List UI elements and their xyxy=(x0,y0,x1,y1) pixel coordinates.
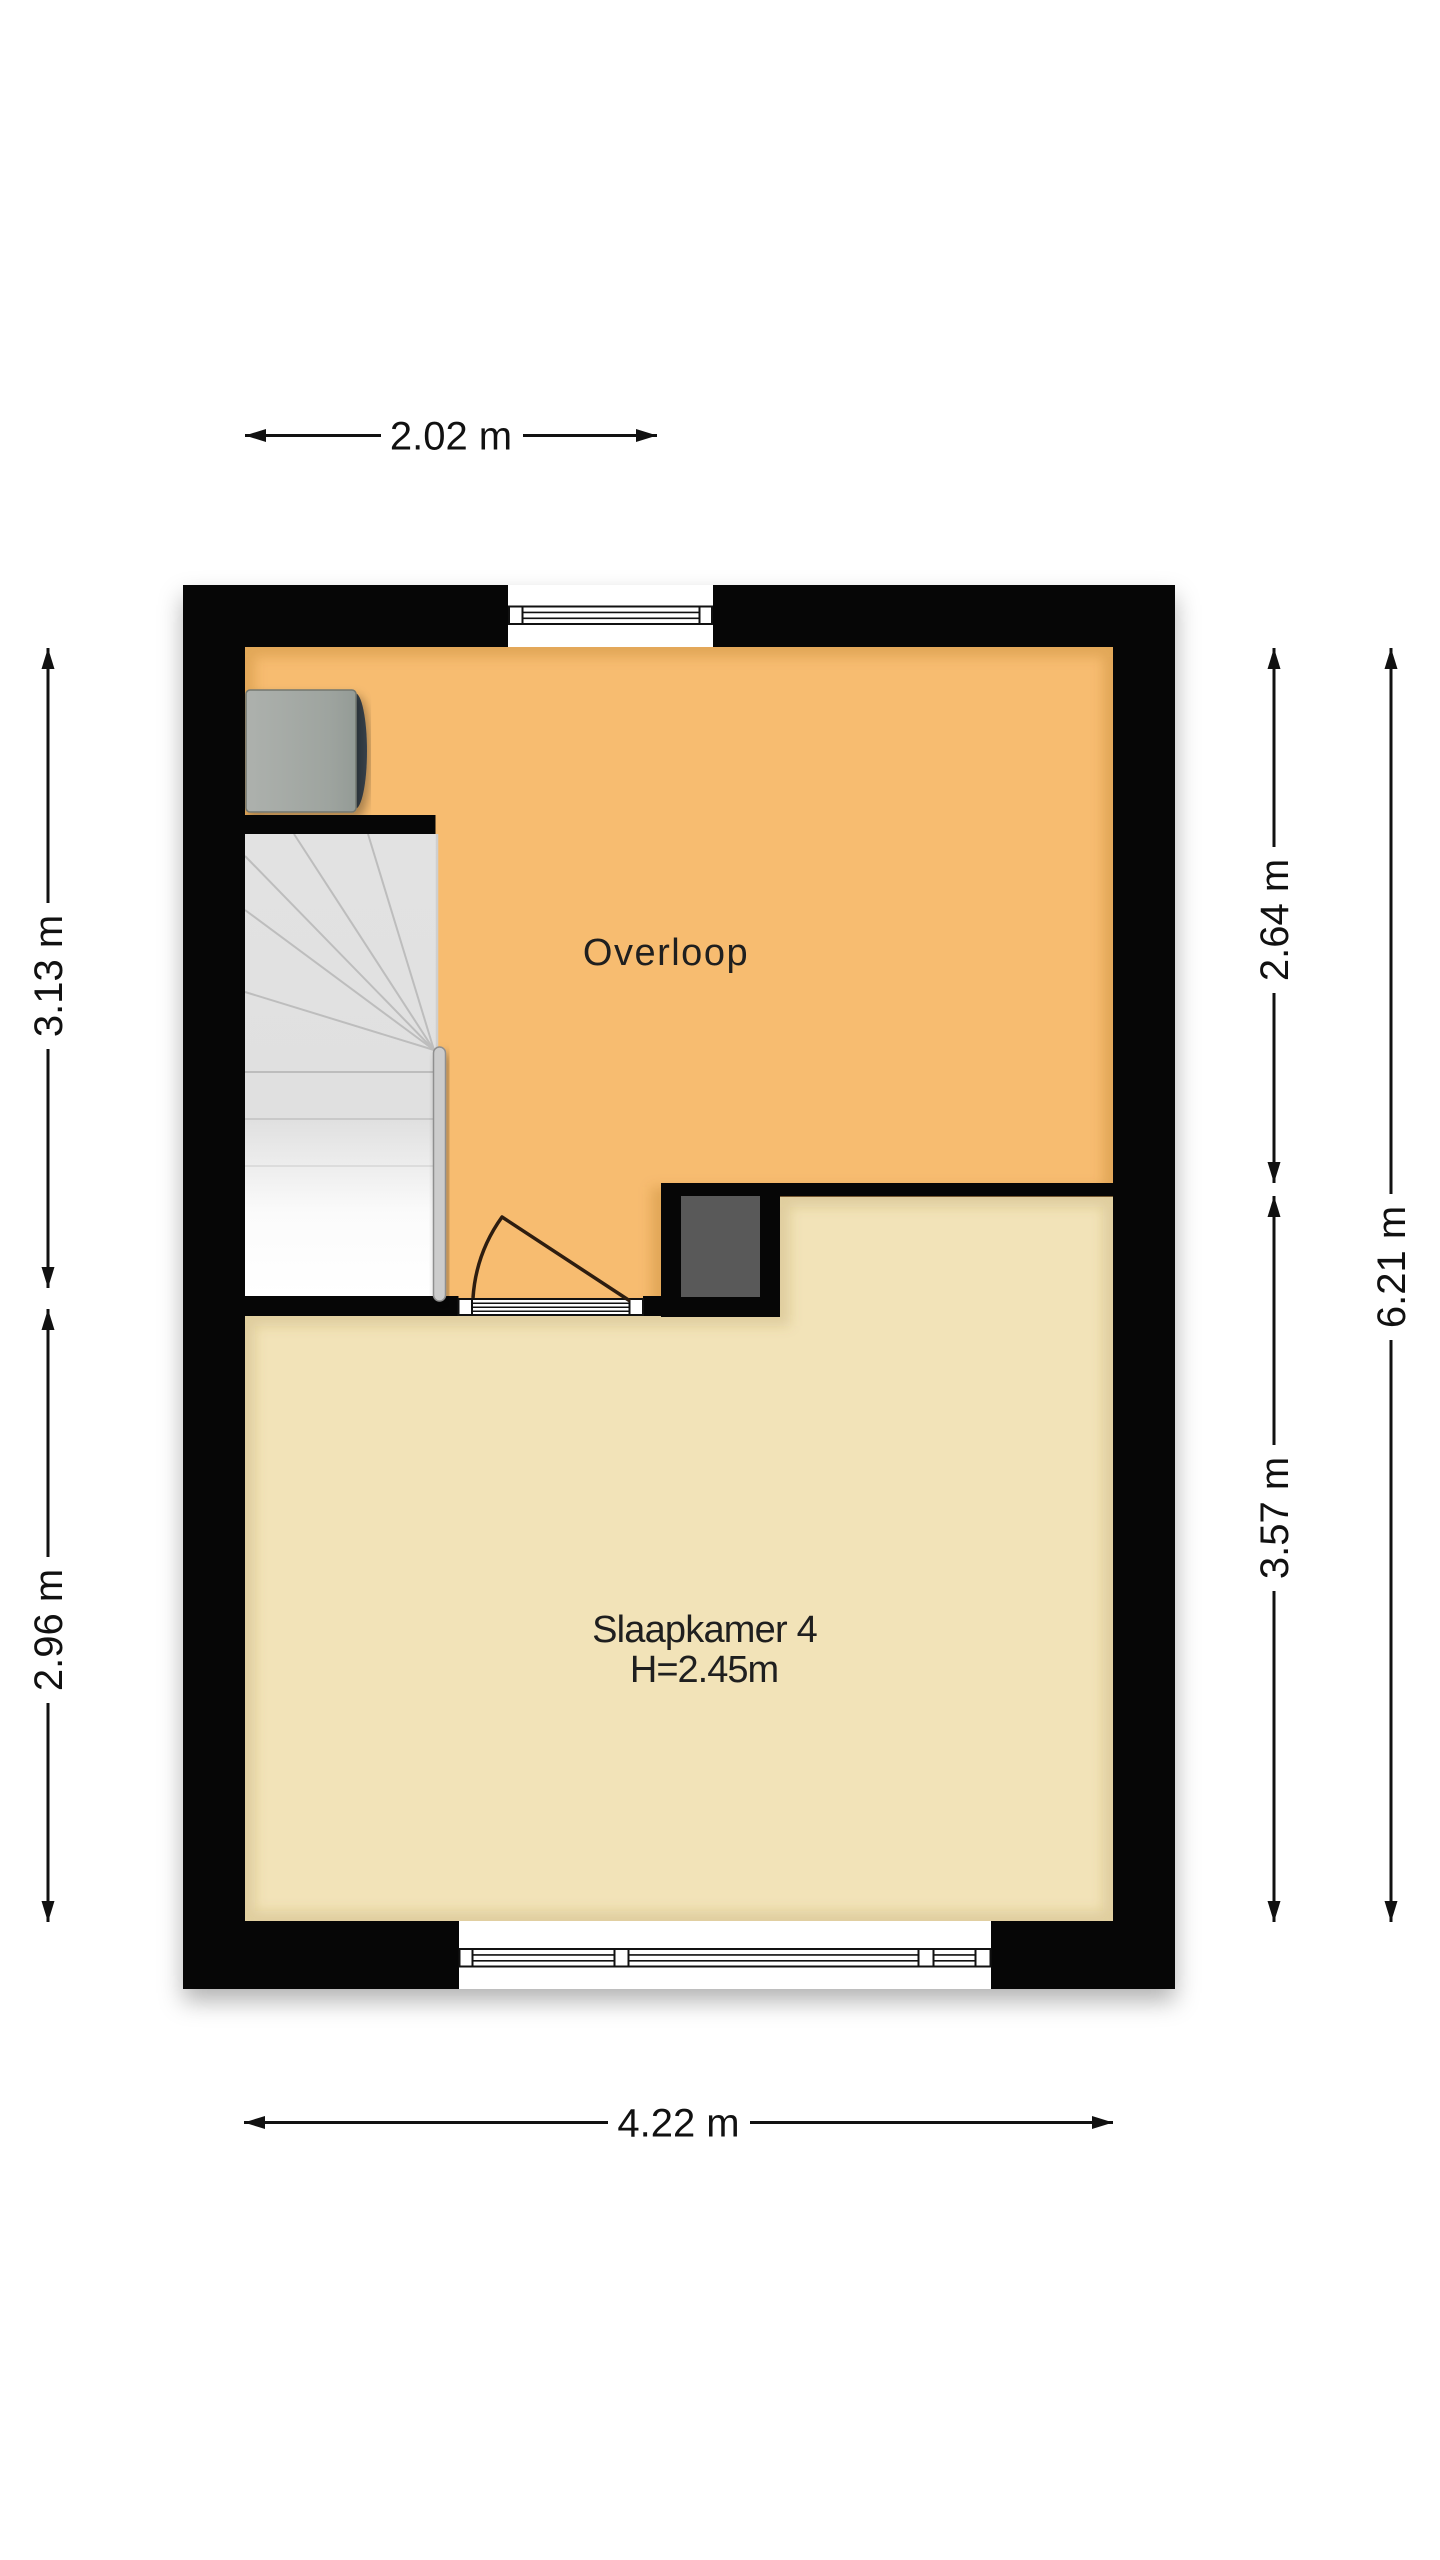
svg-text:4.22 m: 4.22 m xyxy=(617,2102,739,2146)
svg-text:2.64 m: 2.64 m xyxy=(1253,859,1297,981)
svg-text:Overloop: Overloop xyxy=(583,932,749,974)
svg-text:6.21 m: 6.21 m xyxy=(1370,1206,1414,1328)
svg-text:Slaapkamer 4: Slaapkamer 4 xyxy=(592,1609,818,1651)
svg-text:H=2.45m: H=2.45m xyxy=(630,1649,778,1691)
svg-text:2.96 m: 2.96 m xyxy=(27,1569,71,1691)
svg-text:3.57 m: 3.57 m xyxy=(1253,1457,1297,1579)
svg-text:2.02 m: 2.02 m xyxy=(390,415,512,459)
svg-text:3.13 m: 3.13 m xyxy=(27,915,71,1037)
